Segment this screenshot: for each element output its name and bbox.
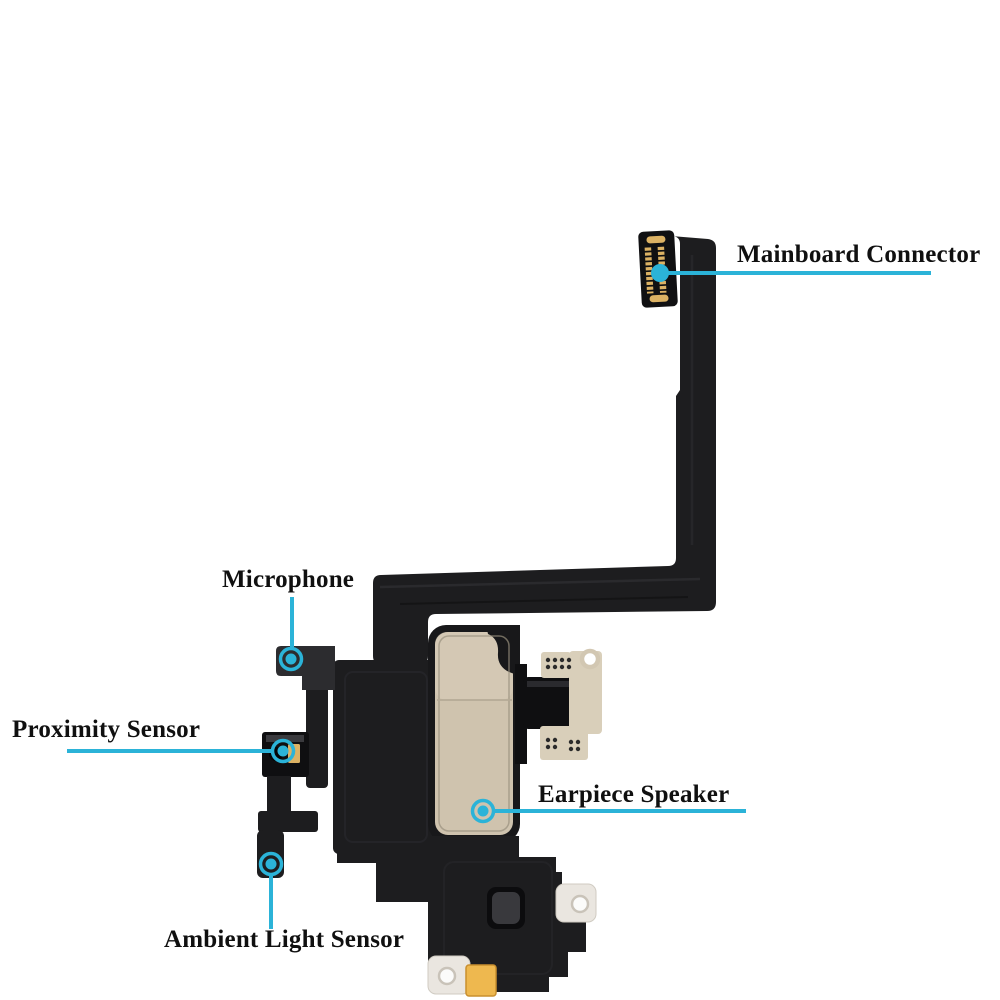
label-microphone: Microphone bbox=[222, 566, 354, 593]
label-mainboard-connector: Mainboard Connector bbox=[737, 241, 980, 268]
label-earpiece-speaker: Earpiece Speaker bbox=[538, 781, 729, 808]
screw-hole-left bbox=[439, 968, 455, 984]
sensor-connector-edge bbox=[527, 681, 569, 687]
flex-cable-illustration bbox=[0, 0, 1000, 1000]
parts-diagram: Mainboard Connector Microphone Proximity… bbox=[0, 0, 1000, 1000]
connector-pad-top bbox=[646, 236, 665, 244]
callout-dot-ambient-light-sensor bbox=[266, 859, 277, 870]
label-ambient-light-sensor: Ambient Light Sensor bbox=[164, 926, 404, 953]
speaker-mesh-inner bbox=[492, 892, 520, 924]
callout-dot-mainboard-connector bbox=[651, 264, 669, 282]
screw-hole-right bbox=[572, 896, 588, 912]
sensor-module-body bbox=[333, 660, 439, 854]
callout-dot-microphone bbox=[286, 654, 297, 665]
connector-pad-bottom bbox=[649, 294, 668, 302]
bracket-pin-hole bbox=[582, 651, 598, 667]
speaker-contact-pad bbox=[466, 965, 496, 996]
sensor-module-body bbox=[376, 850, 433, 902]
sensor-bracket-arm-bottom bbox=[540, 726, 588, 760]
callout-dot-earpiece-speaker bbox=[478, 806, 489, 817]
ambient-light-flex bbox=[267, 776, 291, 816]
ambient-light-flex bbox=[258, 811, 318, 832]
label-proximity-sensor: Proximity Sensor bbox=[12, 716, 200, 743]
sensor-bracket-arm-top bbox=[541, 652, 571, 678]
callout-dot-proximity-sensor bbox=[278, 746, 289, 757]
